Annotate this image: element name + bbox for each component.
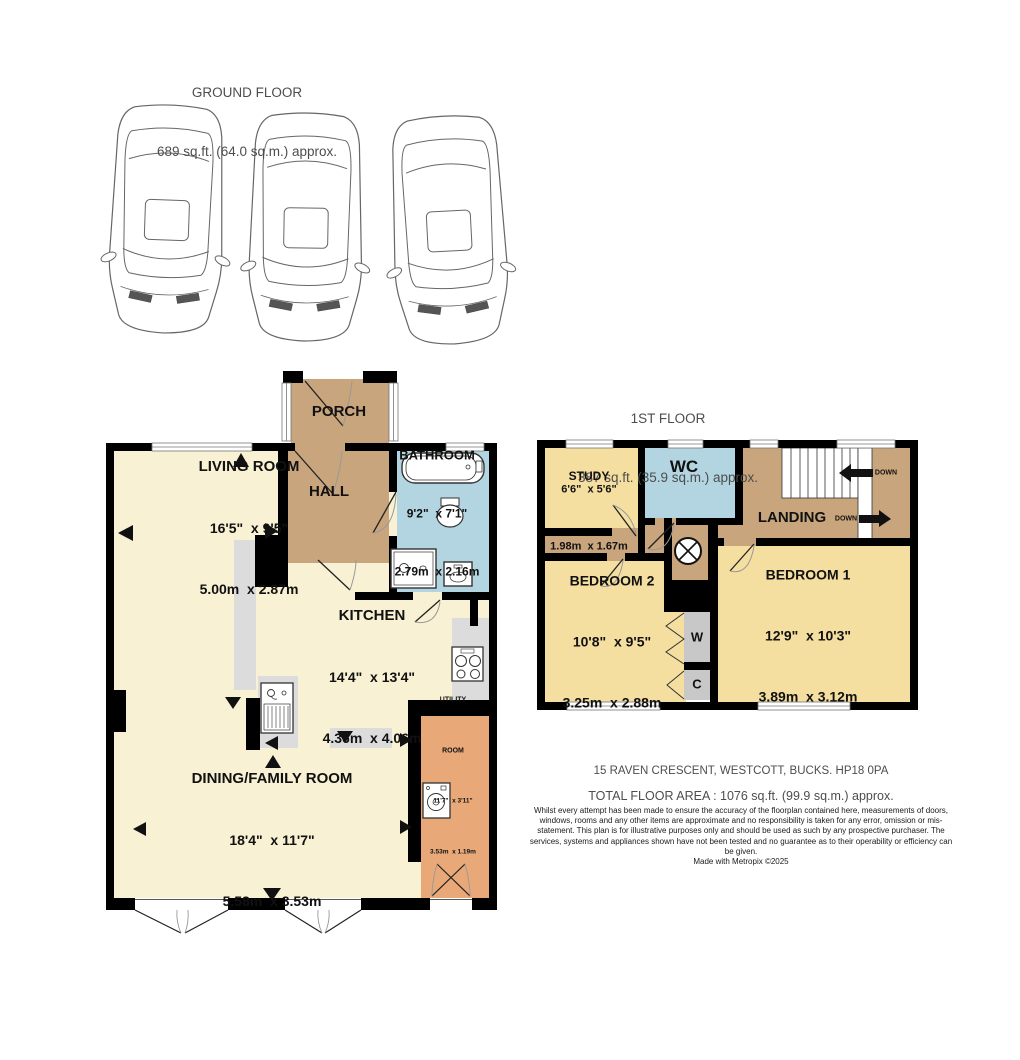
first-floor-title: 1ST FLOOR [578,409,758,429]
dining-family-room-label: DINING/FAMILY ROOM 18'4" x 11'7" 5.58m x… [192,727,353,932]
bedroom1-label: BEDROOM 1 12'9" x 10'3" 3.89m x 3.12m [759,523,858,726]
metropix-credit: Made with Metropix ©2025 [693,857,788,866]
utility-room-label: UTILITY ROOM 11'7" x 3'11" 3.53m x 1.19m [430,654,476,877]
ground-floor-title: GROUND FLOOR [157,83,337,103]
ground-floor-header: GROUND FLOOR 689 sq.ft. (64.0 sq.m.) app… [157,44,337,181]
ground-floor-area: 689 sq.ft. (64.0 sq.m.) approx. [157,142,337,162]
floorplan-page: GROUND FLOOR 689 sq.ft. (64.0 sq.m.) app… [0,0,1020,1060]
wardrobe-label: W [691,628,703,645]
bedroom2-label: BEDROOM 2 10'8" x 9'5" 3.25m x 2.88m [563,529,662,732]
floorplan-drawing [0,0,1020,1060]
living-room-label: LIVING ROOM 16'5" x 9'5" 5.00m x 2.87m [199,415,300,620]
kitchen-sink-icon [261,683,293,733]
porch-label: PORCH [312,402,366,422]
total-floor-area: TOTAL FLOOR AREA : 1076 sq.ft. (99.9 sq.… [588,789,893,803]
disclaimer-block: Whilst every attempt has been made to en… [525,806,957,867]
hall-floor [288,451,389,563]
hall-label: HALL [309,482,349,502]
disclaimer-text: Whilst every attempt has been made to en… [530,806,952,856]
water-cylinder-icon [675,538,701,564]
property-address: 15 RAVEN CRESCENT, WESTCOTT, BUCKS. HP18… [594,765,889,777]
cupboard-label: C [692,675,701,692]
down-label-lower: DOWN [835,514,857,523]
wc-label: WC [670,456,698,478]
down-label-upper: DOWN [875,468,897,477]
